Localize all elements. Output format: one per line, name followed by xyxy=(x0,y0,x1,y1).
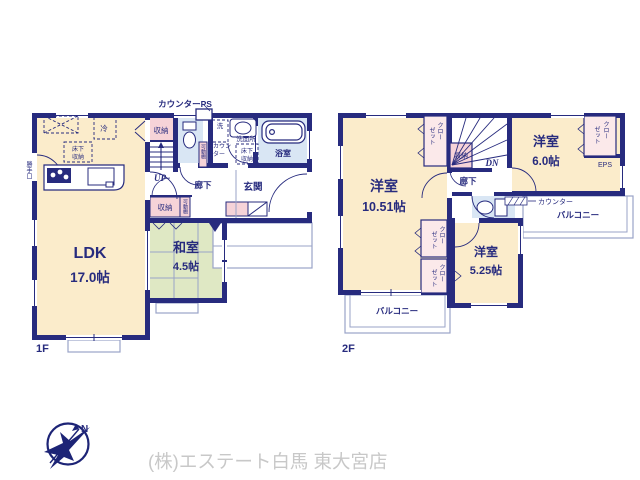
washitsu-area: 4.5帖 xyxy=(173,259,199,273)
bathtub-icon xyxy=(262,121,305,143)
room-southeast-fill xyxy=(455,223,518,303)
balcony-south-label: バルコニー xyxy=(376,306,418,316)
shoe-cabinet xyxy=(226,202,248,216)
front-door-opening xyxy=(307,172,312,212)
company-logo: N xyxy=(44,424,90,470)
room-northeast-area: 6.0帖 xyxy=(532,154,560,168)
closet-northeast-label-1: クロー xyxy=(602,121,609,139)
washroom-label: 洗面所 xyxy=(236,134,256,143)
movable-shelf-2-label: 可動棚 xyxy=(182,199,188,215)
counter-2f-label: カウンター xyxy=(538,197,573,206)
closet-stairs-label-1: クロー xyxy=(436,122,443,140)
floor1-plan: カウンターPS 冷 床下 収納 勝手口 収納 UP 廊下 玄関 洗 カウン ター… xyxy=(25,99,312,355)
movable-shelf-1-label: 可動棚 xyxy=(200,144,206,160)
storage-bottom-label: 収納 xyxy=(158,202,173,212)
room-west-name: 洋室 xyxy=(370,178,398,194)
back-door-opening xyxy=(32,153,37,181)
ldk-door-opening xyxy=(145,172,150,200)
toilet1-icon xyxy=(183,122,196,148)
closet-stairs-label-2: ゼット xyxy=(428,126,435,145)
counter-label-1: カウン xyxy=(213,142,231,150)
closet-mid-lower-label-2: ゼット xyxy=(430,268,437,287)
closet-northeast-label-2: ゼット xyxy=(593,125,600,144)
company-name: (株)エステート白馬 東大宮店 xyxy=(148,451,387,472)
eps-label: EPS xyxy=(598,162,612,169)
room-southeast-area: 5.25帖 xyxy=(470,263,502,277)
room-west-area: 10.51帖 xyxy=(362,199,406,214)
entrance-label: 玄関 xyxy=(243,181,262,193)
washbasin-icon xyxy=(230,119,256,137)
counter-label-2: ター xyxy=(213,150,225,158)
floor1-label: 1F xyxy=(36,343,49,355)
underfloor-washroom-label-1: 床下 xyxy=(241,147,253,155)
compass-needle xyxy=(50,429,79,463)
storage-2f-label: 収納 xyxy=(454,151,468,160)
hallway1-label: 廊下 xyxy=(194,180,212,190)
fridge-label: 冷 xyxy=(100,123,108,133)
balcony-east-label: バルコニー xyxy=(557,210,599,220)
washitsu-name: 和室 xyxy=(173,240,199,255)
back-door-label: 勝手口 xyxy=(25,160,32,180)
room-southeast-name: 洋室 xyxy=(474,244,498,259)
bathroom-label: 浴室 xyxy=(275,148,291,158)
stairs-down-label: DN xyxy=(485,158,499,168)
floor2-label: 2F xyxy=(342,343,355,355)
ldk-terrace-step xyxy=(68,340,120,352)
floorplan-image: カウンターPS 冷 床下 収納 勝手口 収納 UP 廊下 玄関 洗 カウン ター… xyxy=(0,0,640,480)
underfloor-washroom-label-2: 収納 xyxy=(241,155,253,163)
ldk-room-fill xyxy=(37,118,145,335)
kitchen-counter-icon xyxy=(44,165,124,190)
room-northeast-name: 洋室 xyxy=(533,134,559,149)
washer-label: 洗 xyxy=(217,121,224,130)
front-door-arc xyxy=(269,174,307,212)
ldk-name: LDK xyxy=(74,245,107,262)
closet-mid-upper-label-1: クロー xyxy=(438,226,445,244)
closet-mid-upper-label-2: ゼット xyxy=(430,230,437,249)
underfloor-kitchen-label-1: 床下 xyxy=(72,145,84,153)
underfloor-kitchen-label-2: 収納 xyxy=(72,153,84,161)
stairs-up-icon xyxy=(150,142,173,170)
floorplan-page: カウンターPS 冷 床下 収納 勝手口 収納 UP 廊下 玄関 洗 カウン ター… xyxy=(0,0,640,480)
ldk-area: 17.0帖 xyxy=(70,269,110,285)
storage-top-label: 収納 xyxy=(154,125,169,135)
compass-north-label: N xyxy=(81,424,88,435)
stairs-up-label: UP xyxy=(154,173,166,183)
washitsu-step xyxy=(156,303,198,313)
closet-northeast-box xyxy=(584,116,616,156)
floor2-plan: 洋室 10.51帖 洋室 6.0帖 洋室 5.25帖 クロー ゼット クロー ゼ… xyxy=(338,113,633,355)
counter-ps-label: カウンターPS xyxy=(158,99,212,109)
hallway2-label: 廊下 xyxy=(459,176,477,186)
closet-mid-lower-label-1: クロー xyxy=(438,264,445,282)
